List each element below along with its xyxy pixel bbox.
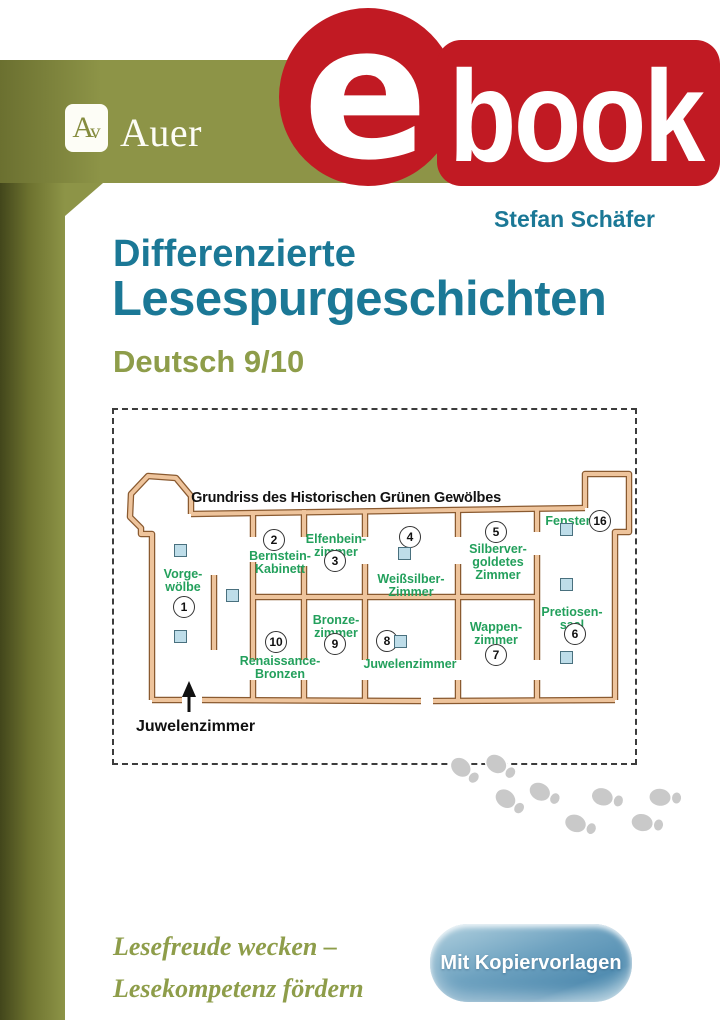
room-number-badge-6: 6 xyxy=(564,623,586,645)
room-number-badge-10: 10 xyxy=(265,631,287,653)
room-number-badge-16: 16 xyxy=(589,510,611,532)
title-line1: Differenzierte xyxy=(113,233,356,276)
tagline-line2: Lesekompetenz fördern xyxy=(113,968,364,1010)
kopiervorlagen-label: Mit Kopiervorlagen xyxy=(440,952,621,975)
display-case-icon-6 xyxy=(560,523,573,536)
room-label-5: Silberver- goldetes Zimmer xyxy=(469,543,527,582)
display-case-icon-5 xyxy=(394,635,407,648)
display-case-icon-7 xyxy=(560,578,573,591)
room-number-badge-4: 4 xyxy=(399,526,421,548)
room-label-4: Weißsilber- Zimmer xyxy=(377,573,444,599)
floorplan-diagram: Grundriss des Historischen Grünen Gewölb… xyxy=(112,408,637,765)
floorplan-title: Grundriss des Historischen Grünen Gewölb… xyxy=(191,490,501,506)
publisher-name: Auer xyxy=(120,109,202,156)
display-case-icon-8 xyxy=(560,651,573,664)
ebook-badge-book: book xyxy=(437,70,703,186)
room-number-badge-7: 7 xyxy=(485,644,507,666)
left-olive-strip xyxy=(0,60,65,1020)
footprint-trail-icon xyxy=(440,742,690,847)
logo-monogram-v: v xyxy=(90,121,101,142)
room-number-badge-2: 2 xyxy=(263,529,285,551)
ebook-badge-rect: book xyxy=(437,40,720,186)
room-label-1: Vorge- wölbe xyxy=(164,568,203,594)
display-case-icon-1 xyxy=(174,544,187,557)
ebook-badge-circle: e xyxy=(279,8,457,186)
room-number-badge-9: 9 xyxy=(324,633,346,655)
ebook-badge-e: e xyxy=(303,0,428,201)
tagline-line1: Lesefreude wecken – xyxy=(113,926,364,968)
room-label-10: Renaissance- Bronzen xyxy=(240,655,321,681)
display-case-icon-4 xyxy=(398,547,411,560)
room-number-badge-3: 3 xyxy=(324,550,346,572)
banner-corner-wedge xyxy=(65,183,103,216)
display-case-icon-3 xyxy=(226,589,239,602)
room-label-2: Bernstein- Kabinett xyxy=(249,550,311,576)
subtitle: Deutsch 9/10 xyxy=(113,344,304,380)
kopiervorlagen-badge: Mit Kopiervorlagen xyxy=(430,924,632,1002)
tagline: Lesefreude wecken – Lesekompetenz förder… xyxy=(113,926,364,1010)
author-name: Stefan Schäfer xyxy=(494,206,655,233)
room-number-badge-1: 1 xyxy=(173,596,195,618)
auer-logo-icon: A v xyxy=(65,104,108,152)
entrance-arrow-icon xyxy=(182,681,196,712)
room-label-8: Juwelenzimmer xyxy=(363,658,456,671)
title-line2: Lesespurgeschichten xyxy=(112,271,606,327)
display-case-icon-2 xyxy=(174,630,187,643)
entrance-label: Juwelenzimmer xyxy=(136,718,255,736)
room-number-badge-5: 5 xyxy=(485,521,507,543)
